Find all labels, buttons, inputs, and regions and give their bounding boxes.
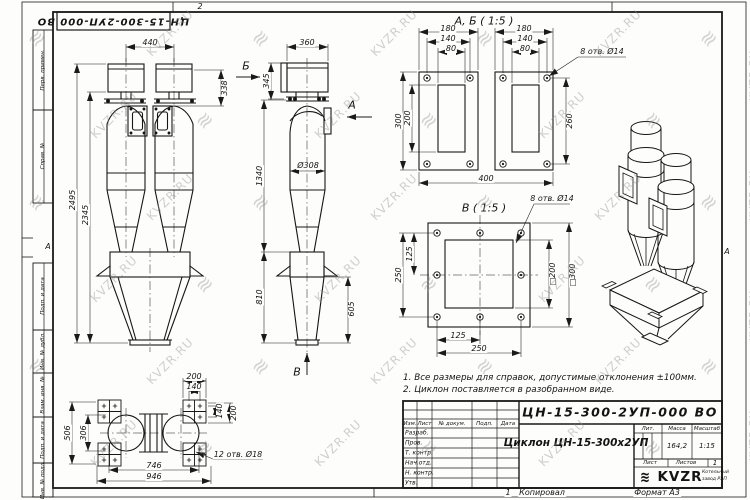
dim-label: 140 bbox=[185, 383, 202, 391]
dim-label: 125 bbox=[406, 245, 414, 262]
tb-col-list: Лист bbox=[418, 421, 432, 427]
margin-label-podp-data-1: Подп. и дата bbox=[40, 277, 46, 314]
margin-label-podp-data-2: Подп. и дата bbox=[40, 421, 46, 458]
dim-label: 180 bbox=[439, 25, 456, 33]
company-logo-text: KVZR bbox=[657, 469, 702, 485]
dim-label: 345 bbox=[263, 72, 271, 89]
dim-label: □300 bbox=[569, 263, 577, 288]
dim-label: 80 bbox=[445, 45, 457, 53]
dim-label: 400 bbox=[477, 175, 494, 183]
hole-note: 8 отв. Ø14 bbox=[529, 195, 574, 203]
dim-label: Ø308 bbox=[296, 162, 320, 170]
margin-label-inv-dubl: Инв. № дубл. bbox=[40, 332, 46, 370]
company-name-line2: завод РЭП bbox=[702, 477, 727, 482]
zone-letter-left: А bbox=[44, 243, 51, 251]
side-view bbox=[277, 63, 337, 345]
tb-scale-value: 1:15 bbox=[699, 442, 715, 450]
dim-label: 260 bbox=[566, 112, 574, 129]
dim-label: 200 bbox=[230, 404, 238, 421]
margin-label-perv-primen: Перв. примен. bbox=[40, 49, 46, 90]
dim-label: 338 bbox=[221, 79, 229, 96]
tb-col-izm: Изм. bbox=[404, 421, 417, 427]
format-label: Формат А3 bbox=[633, 489, 681, 497]
dim-label: 140 bbox=[516, 35, 533, 43]
view-title-ab: А, Б ( 1:5 ) bbox=[454, 16, 515, 27]
drawing-linework bbox=[0, 0, 750, 500]
tb-sheet-label: Лист bbox=[643, 460, 657, 466]
view-arrow-letter-b: Б bbox=[241, 61, 251, 72]
view-title-v: В ( 1:5 ) bbox=[461, 203, 507, 214]
dim-label: 1340 bbox=[256, 165, 264, 187]
dim-label: 180 bbox=[515, 25, 532, 33]
dim-label: 605 bbox=[348, 300, 356, 317]
dim-label: 746 bbox=[145, 462, 162, 470]
margin-label-sprav-no: Справ. № bbox=[40, 143, 46, 170]
dim-label: 140 bbox=[439, 35, 456, 43]
margin-label-vzam-inv: Взам. инв. № bbox=[40, 376, 46, 413]
drawing-sheet: 44024952345338360345БАØ3081340810605ВА, … bbox=[0, 0, 750, 500]
zone-letter-right: А bbox=[723, 248, 730, 256]
titleblock-part-name: Циклон ЦН-15-300х2УП bbox=[504, 437, 649, 449]
dim-label: □200 bbox=[549, 262, 557, 287]
dim-label: 360 bbox=[298, 39, 315, 47]
company-name-line1: Котельный bbox=[702, 470, 729, 475]
dim-label: 250 bbox=[470, 345, 487, 353]
dim-label: 306 bbox=[80, 424, 88, 441]
tb-sheets-label: Листов bbox=[676, 460, 697, 466]
note-1: 1. Все размеры для справок, допустимые о… bbox=[403, 373, 697, 383]
dim-label: 946 bbox=[145, 473, 162, 481]
dim-label: 810 bbox=[256, 288, 264, 305]
view-arrow-letter-a: А bbox=[347, 100, 357, 111]
dim-label: 2345 bbox=[82, 204, 90, 226]
dim-label: 80 bbox=[519, 45, 531, 53]
tb-row-tkontr: Т. контр. bbox=[405, 450, 433, 457]
tb-row-prov: Пров. bbox=[405, 440, 422, 447]
dim-label: 506 bbox=[64, 424, 72, 441]
tb-row-nkontr: Н. контр. bbox=[405, 470, 434, 477]
margin-label-inv-podl: Инв. № подл. bbox=[40, 461, 46, 499]
tb-mass-label: Масса bbox=[668, 426, 686, 432]
view-arrow-letter-v: В bbox=[292, 367, 302, 378]
isometric-view bbox=[602, 122, 707, 346]
tb-row-razrab: Разраб. bbox=[405, 430, 429, 437]
dim-label: 2495 bbox=[69, 189, 77, 211]
tb-row-utv: Утв. bbox=[405, 480, 418, 487]
front-dims bbox=[74, 44, 224, 343]
dim-label: 250 bbox=[395, 266, 403, 283]
tb-col-data: Дата bbox=[501, 421, 515, 427]
tb-col-podp: Подп. bbox=[476, 421, 493, 427]
side-dims bbox=[236, 44, 372, 375]
front-centerlines bbox=[126, 58, 174, 352]
dim-label: 125 bbox=[449, 332, 466, 340]
tb-row-nachotd: Нач.отд. bbox=[405, 460, 432, 467]
hole-note: 8 отв. Ø14 bbox=[579, 48, 624, 56]
tb-scale-label: Масштаб bbox=[694, 426, 720, 432]
dim-label: 440 bbox=[141, 39, 158, 47]
tb-lit-label: Лит. bbox=[642, 426, 655, 432]
dim-label: 200 bbox=[404, 109, 412, 126]
zone-number-top: 2 bbox=[196, 3, 203, 11]
top-designation: ЦН-15-300-2УП-000 ВО bbox=[37, 16, 190, 27]
dim-label: 300 bbox=[395, 112, 403, 129]
company-coil-icon: ≋ bbox=[640, 468, 650, 486]
hole-note: 12 отв. Ø18 bbox=[213, 451, 264, 459]
tb-sheets-value: 1 bbox=[713, 459, 717, 467]
dim-label: 200 bbox=[185, 373, 202, 381]
bottom-dims bbox=[69, 378, 263, 484]
section-ab bbox=[419, 72, 553, 170]
view-v-dims bbox=[399, 204, 573, 357]
sheet-frame bbox=[22, 2, 746, 497]
note-2: 2. Циклон поставляется в разобранном вид… bbox=[403, 385, 615, 395]
tb-mass-value: 164,2 bbox=[667, 442, 687, 450]
tb-col-dokum: № докум. bbox=[438, 421, 465, 427]
bottom-centerlines bbox=[100, 408, 207, 458]
dim-label: 140 bbox=[216, 402, 224, 419]
titleblock-designation: ЦН-15-300-2УП-000 ВО bbox=[522, 405, 718, 420]
zone-number-bottom: 1 bbox=[504, 489, 511, 497]
copied-label: Копировал bbox=[518, 489, 566, 497]
